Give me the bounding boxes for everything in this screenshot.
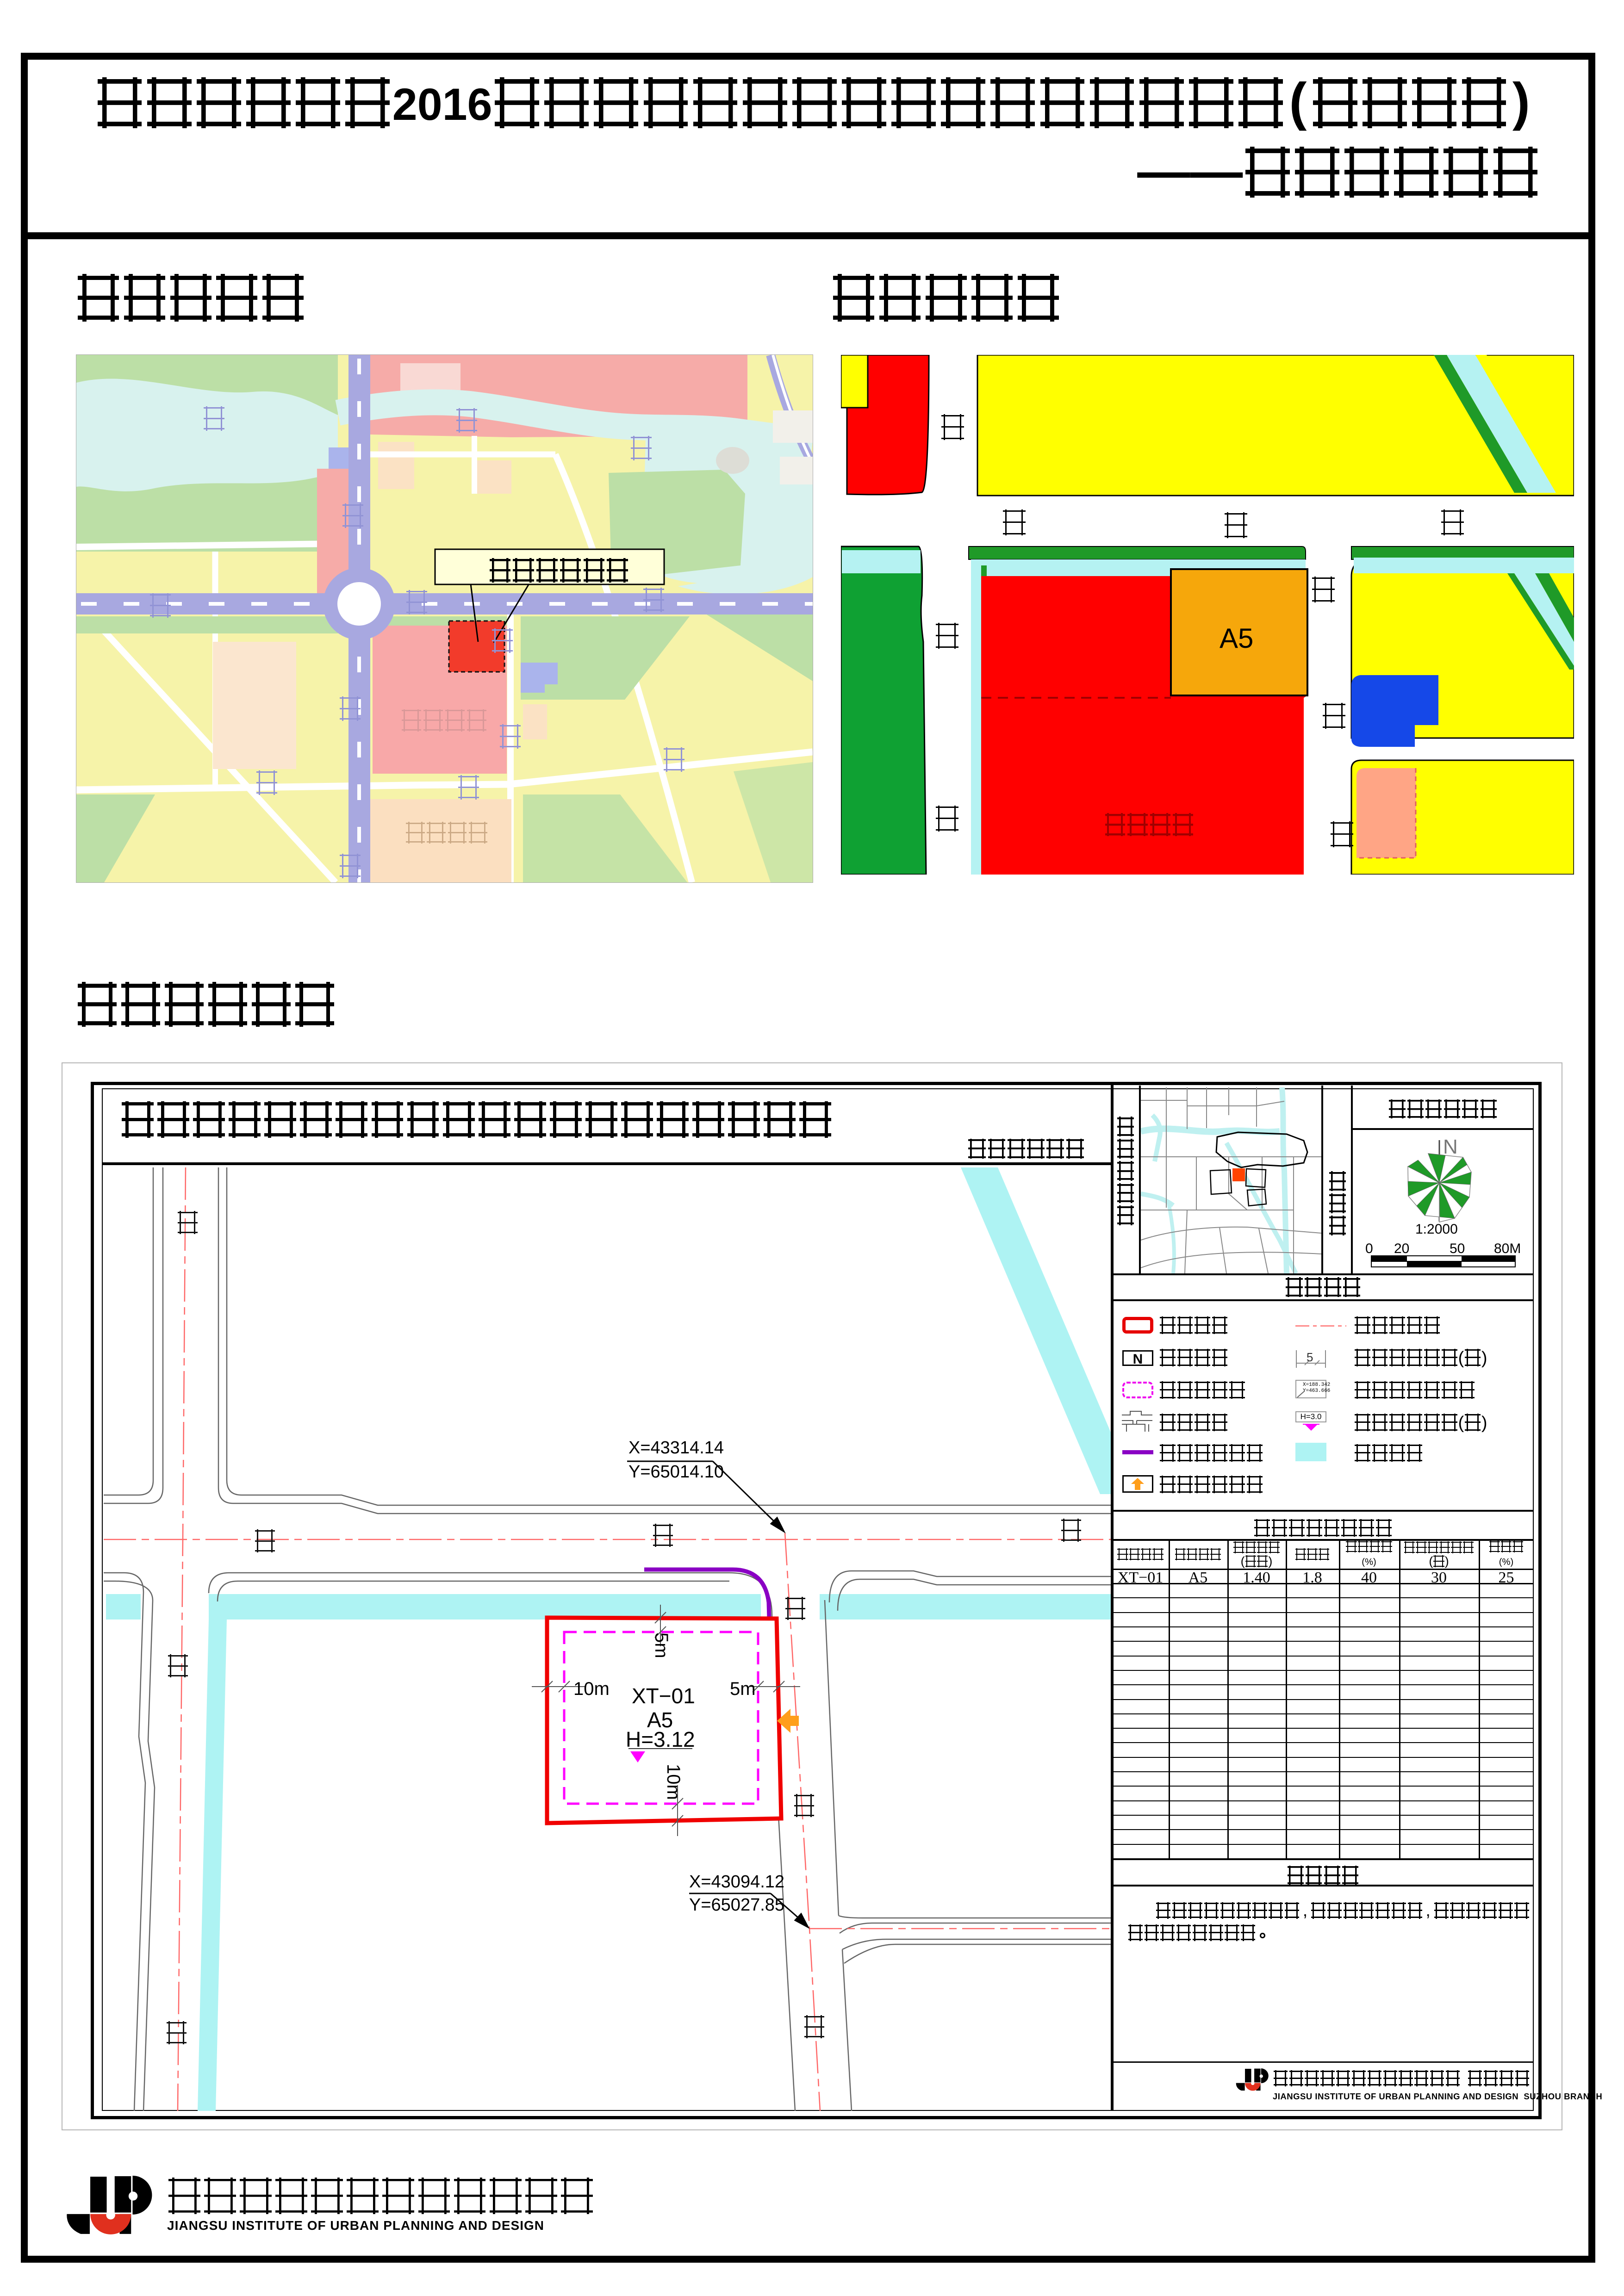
svg-text:N: N <box>1443 1136 1458 1158</box>
svg-text:5: 5 <box>1307 1350 1313 1364</box>
